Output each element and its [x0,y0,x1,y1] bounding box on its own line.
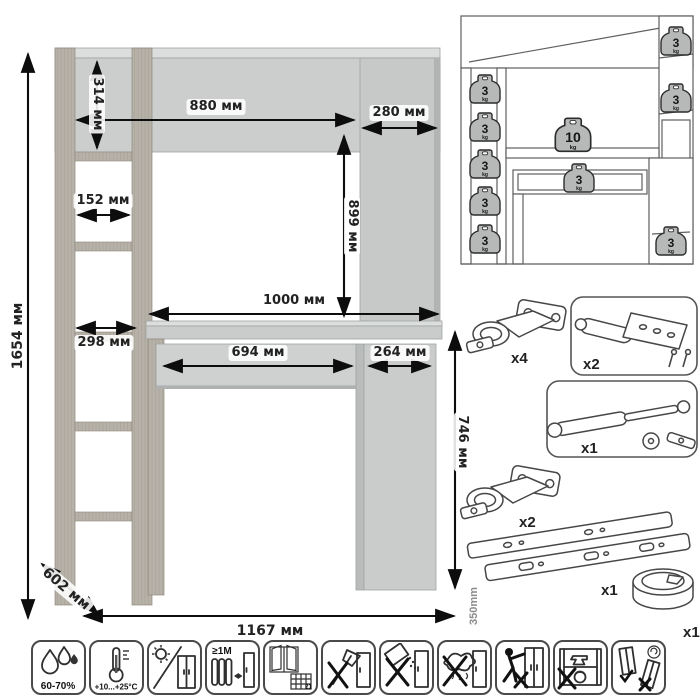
no-dragging-icon [495,640,550,695]
weight-badge: 3kg [564,164,594,192]
svg-text:kg: kg [482,97,488,103]
dim-shelf-depth: 298 мм [75,335,134,351]
left-stile [55,48,75,605]
humidity-icon: 60-70% [31,640,86,695]
svg-text:kg: kg [482,135,488,141]
base-cabinet-door [364,344,436,590]
weight-badge-desktop: 10kg [555,118,590,151]
no-tilting-icon [611,640,666,695]
weight-badge: 3kg [470,75,500,103]
load-limit-diagram: 3kg 3kg 3kg 3kg 3kg 3kg 3kg 10kg 3kg 3kg [455,2,700,294]
grommet-qty: x1 [683,624,700,640]
svg-text:3: 3 [482,159,489,173]
dim-hutch-height: 314 мм [89,75,105,134]
furniture-spec-sheet: 1654 мм 314 мм 880 мм 280 мм 899 мм 152 … [0,0,700,700]
no-abrasive-cleaners-icon [379,640,434,695]
door-damper-item: x2 [571,297,697,375]
dim-hutch-width: 880 мм [187,99,246,115]
svg-text:21: 21 [305,685,312,691]
weight-badge: 3kg [470,225,500,253]
drawer-gap [156,386,358,389]
weight-badge: 3kg [470,150,500,178]
svg-text:3: 3 [673,36,680,50]
slides-length-label: 350mm [468,587,480,625]
care-icons-row: 60-70% +10...+25°С [31,640,671,697]
dim-top-cabinet-width: 280 мм [370,105,429,121]
dim-desk-height: 746 мм [454,413,470,472]
hinge2-qty: x2 [519,514,536,531]
svg-text:60-70%: 60-70% [41,681,76,692]
svg-text:+10...+25°С: +10...+25°С [95,683,138,692]
svg-text:3: 3 [482,84,489,98]
dim-total-width: 1167 мм [234,623,307,639]
temperature-icon: +10...+25°С [89,640,144,695]
hutch-top-face [55,48,440,58]
desk-render-diagram [0,0,468,645]
dim-base-cabinet-width: 264 мм [371,345,430,361]
dim-desktop-width: 1000 мм [260,293,328,309]
distance-from-heaters-icon: ≥1М [205,640,260,695]
svg-text:3: 3 [668,236,675,250]
slides-qty: x1 [601,582,618,599]
desk-render [55,48,442,605]
svg-text:kg: kg [482,247,488,253]
dim-drawer-width: 694 мм [229,345,288,361]
svg-text:kg: kg [570,145,577,151]
svg-text:kg: kg [673,49,679,55]
dim-total-height: 1654 мм [10,300,26,373]
gas-lift-item: x1 [547,381,697,457]
dim-top-cabinet-height: 899 мм [344,197,360,256]
no-direct-sunlight-icon [147,640,202,695]
svg-text:3: 3 [673,93,680,107]
svg-text:3: 3 [576,173,583,187]
svg-text:3: 3 [482,234,489,248]
no-sharp-tools-icon [321,640,376,695]
ventilation-calendar-icon: 21 [263,640,318,695]
desktop-edge [146,326,442,339]
desk-divider [356,344,364,590]
no-wet-cleaning-icon [437,640,492,695]
desktop-top-face [146,321,442,326]
dim-shelf-opening: 152 мм [74,193,133,209]
top-cabinet-door [360,58,440,325]
svg-text:≥1М: ≥1М [212,646,231,657]
hinge-item: x4 [466,299,567,367]
svg-text:kg: kg [482,172,488,178]
svg-text:10: 10 [565,130,581,146]
gas-lift-qty: x1 [581,440,598,457]
no-overloading-icon [553,640,608,695]
svg-text:kg: kg [576,186,582,192]
svg-text:kg: kg [673,106,679,112]
hinge-item-2: x2 [460,465,561,531]
wardrobe-glyph [178,656,195,688]
svg-text:kg: kg [668,249,674,255]
weight-badge: 3kg [470,187,500,215]
cable-grommet-item: x1 [633,569,700,640]
top-cabinet-edge [434,58,440,325]
svg-text:3: 3 [482,122,489,136]
weight-badge: 3kg [470,113,500,141]
svg-text:kg: kg [482,209,488,215]
hardware-panel: x4 x2 x1 [455,295,700,640]
hinge-qty: x4 [511,350,528,367]
damper-qty: x2 [583,356,600,373]
svg-text:3: 3 [482,196,489,210]
